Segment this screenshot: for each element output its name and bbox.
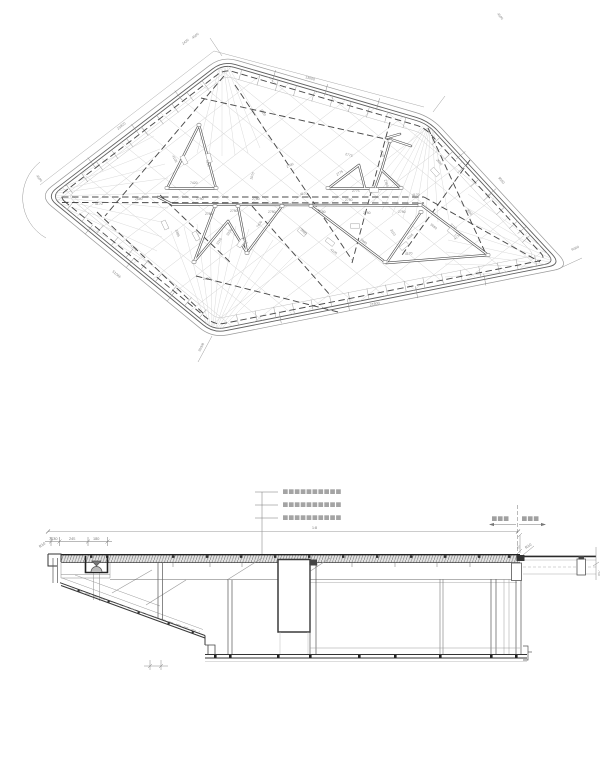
svg-text:180: 180 [93,537,99,541]
svg-text:2780: 2780 [363,211,371,215]
svg-text:2780: 2780 [398,210,406,214]
svg-text:1:8: 1:8 [312,526,317,530]
svg-text:4170: 4170 [95,202,103,206]
svg-text:2780: 2780 [205,212,213,216]
svg-text:20: 20 [516,545,520,549]
svg-text:2780: 2780 [196,197,204,201]
svg-text:7030: 7030 [49,537,57,541]
svg-text:245: 245 [69,537,75,541]
svg-text:7420: 7420 [190,181,198,185]
svg-text:4170: 4170 [405,251,413,256]
svg-text:2690: 2690 [135,197,143,201]
svg-text:2780: 2780 [230,209,238,213]
svg-text:4170: 4170 [300,192,308,196]
svg-text:2780: 2780 [318,210,326,214]
svg-text:2780: 2780 [345,198,353,202]
svg-text:2780: 2780 [252,197,260,201]
svg-text:2775: 2775 [352,189,360,193]
svg-text:2780: 2780 [268,210,276,214]
svg-text:4170: 4170 [412,193,420,197]
svg-text:2400: 2400 [203,277,211,281]
